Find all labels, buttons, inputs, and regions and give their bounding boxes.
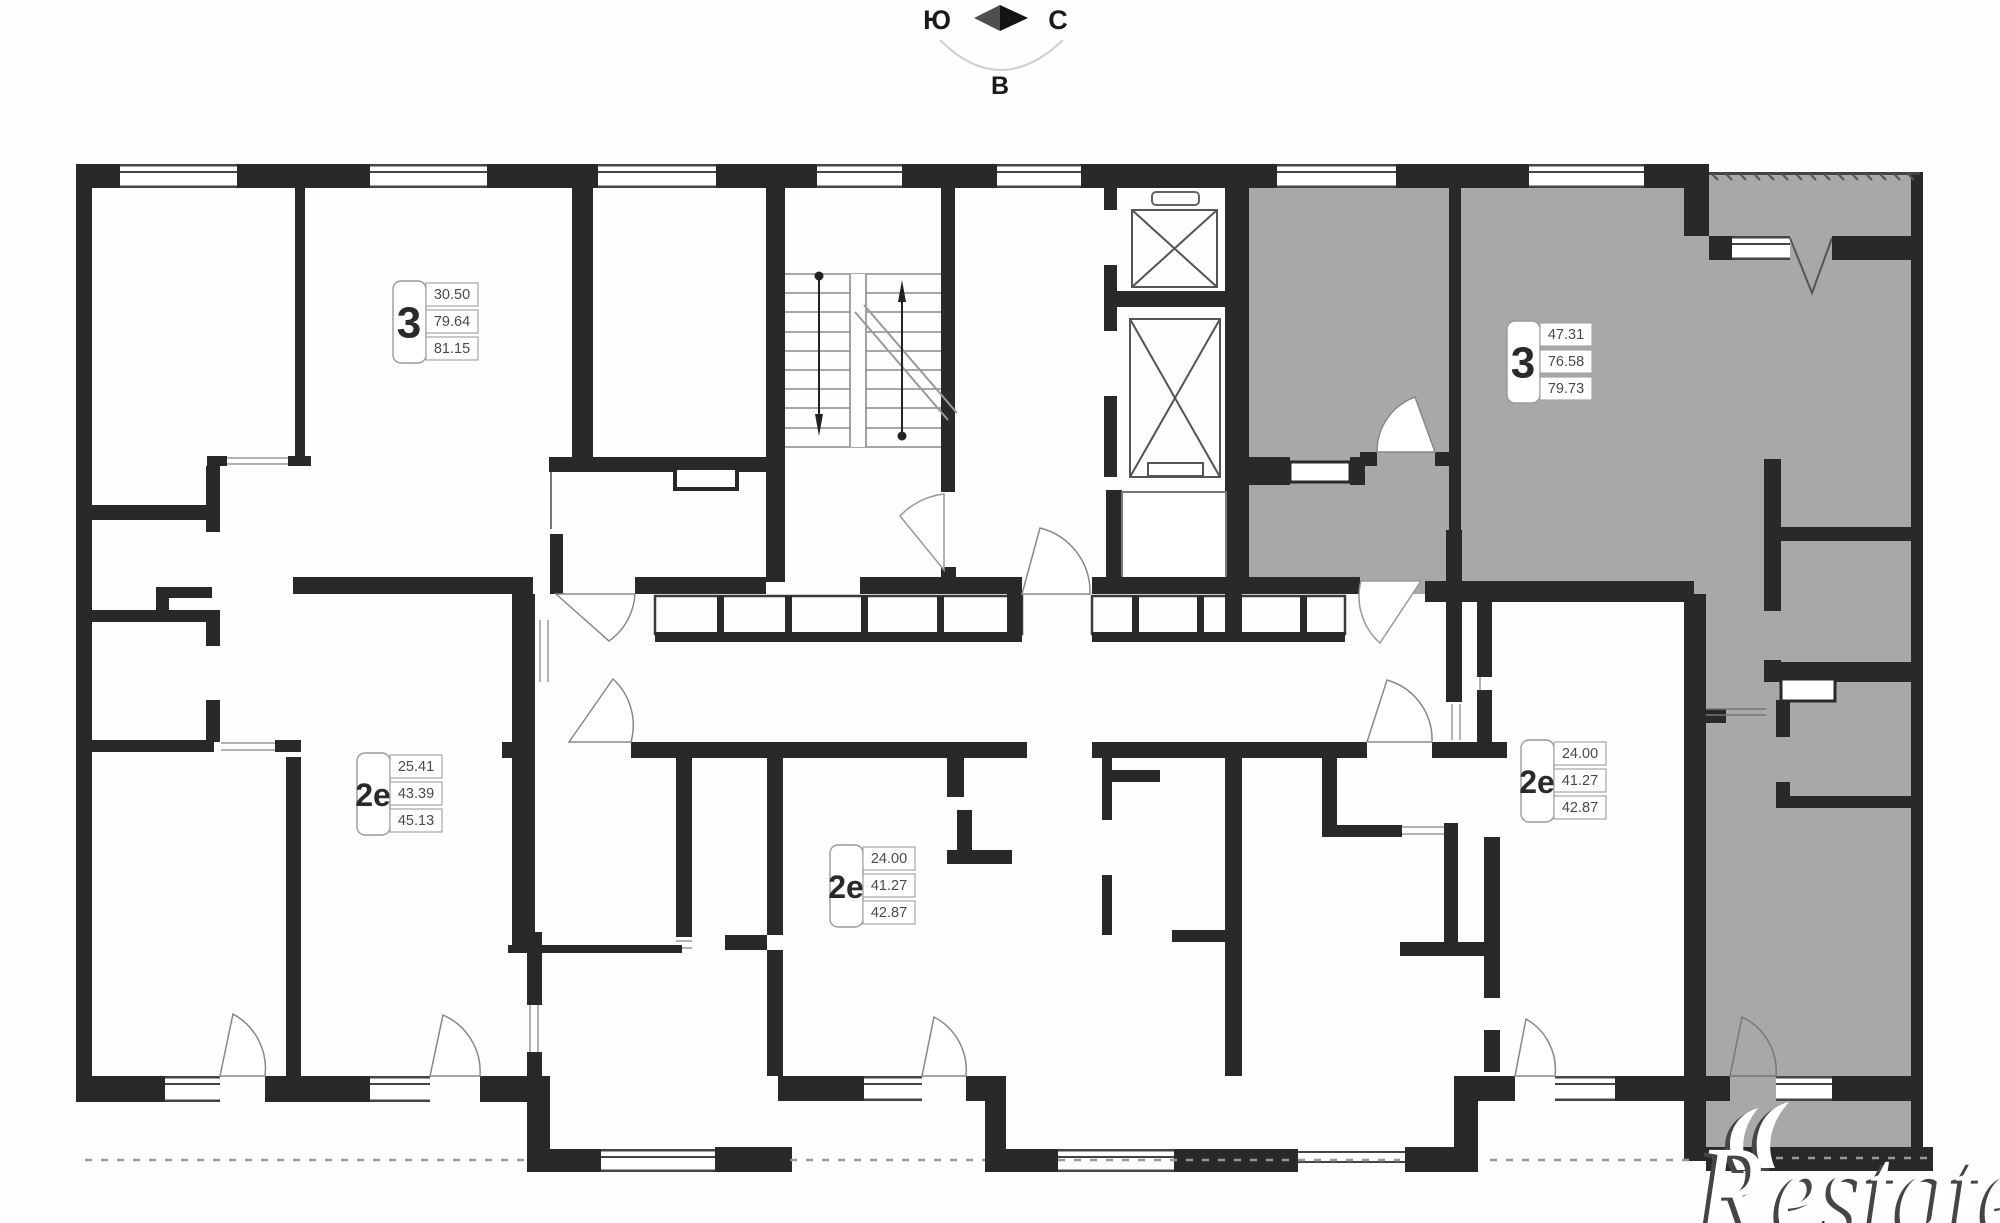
- svg-text:79.64: 79.64: [434, 314, 470, 330]
- svg-text:2е: 2е: [355, 777, 391, 813]
- svg-text:41.27: 41.27: [1562, 773, 1598, 789]
- svg-text:24.00: 24.00: [1562, 746, 1598, 762]
- svg-text:42.87: 42.87: [1562, 800, 1598, 816]
- svg-text:47.31: 47.31: [1548, 327, 1584, 343]
- svg-text:41.27: 41.27: [871, 878, 907, 894]
- svg-text:3: 3: [397, 299, 421, 348]
- svg-text:В: В: [991, 72, 1009, 100]
- svg-text:43.39: 43.39: [398, 786, 434, 802]
- svg-text:42.87: 42.87: [871, 905, 907, 921]
- svg-text:С: С: [1048, 5, 1068, 35]
- svg-text:76.58: 76.58: [1548, 354, 1584, 370]
- svg-text:30.50: 30.50: [434, 287, 470, 303]
- svg-text:2е: 2е: [1519, 764, 1555, 800]
- svg-text:estate: estate: [1775, 1119, 2000, 1223]
- svg-text:24.00: 24.00: [871, 851, 907, 867]
- svg-text:45.13: 45.13: [398, 813, 434, 829]
- svg-text:2е: 2е: [828, 869, 864, 905]
- svg-text:79.73: 79.73: [1548, 381, 1584, 397]
- svg-text:25.41: 25.41: [398, 759, 434, 775]
- svg-text:Ю: Ю: [923, 5, 951, 35]
- svg-text:R: R: [1697, 1120, 1764, 1223]
- svg-text:3: 3: [1511, 339, 1535, 388]
- svg-text:81.15: 81.15: [434, 341, 470, 357]
